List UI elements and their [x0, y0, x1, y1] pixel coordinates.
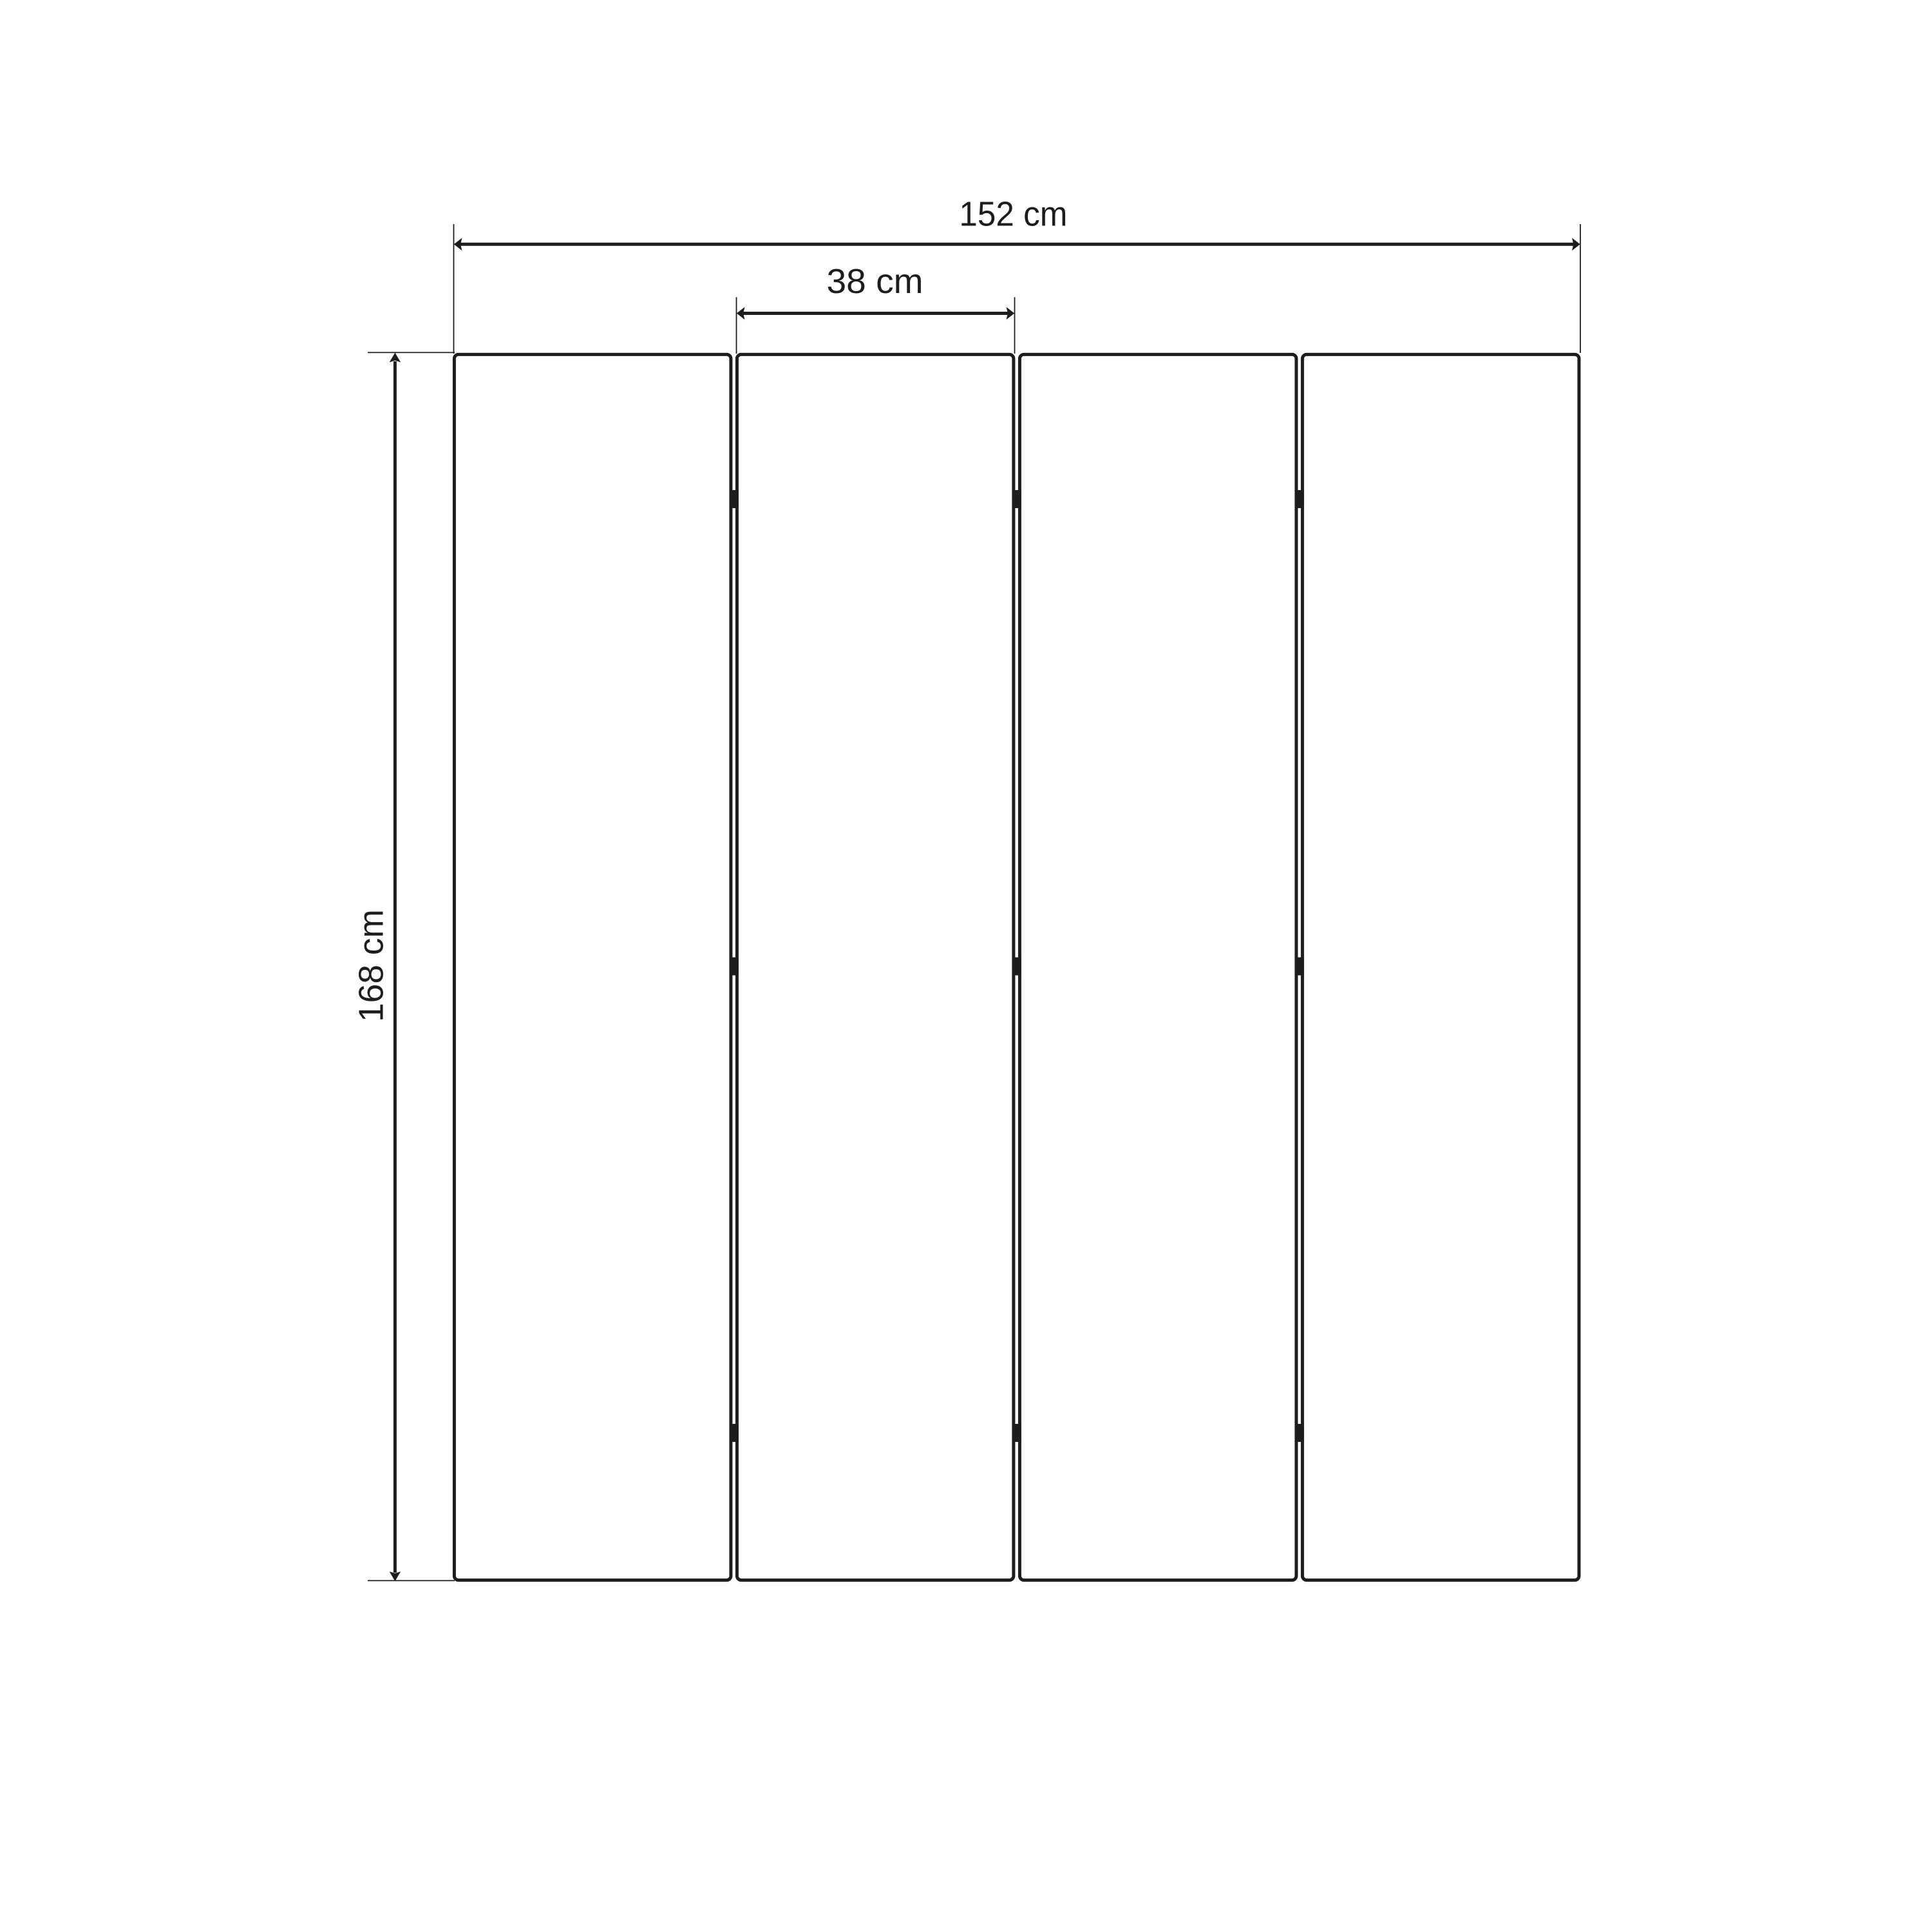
svg-text:152 cm: 152 cm — [959, 195, 1067, 234]
svg-text:38 cm: 38 cm — [827, 262, 923, 301]
svg-text:168 cm: 168 cm — [352, 909, 391, 1022]
